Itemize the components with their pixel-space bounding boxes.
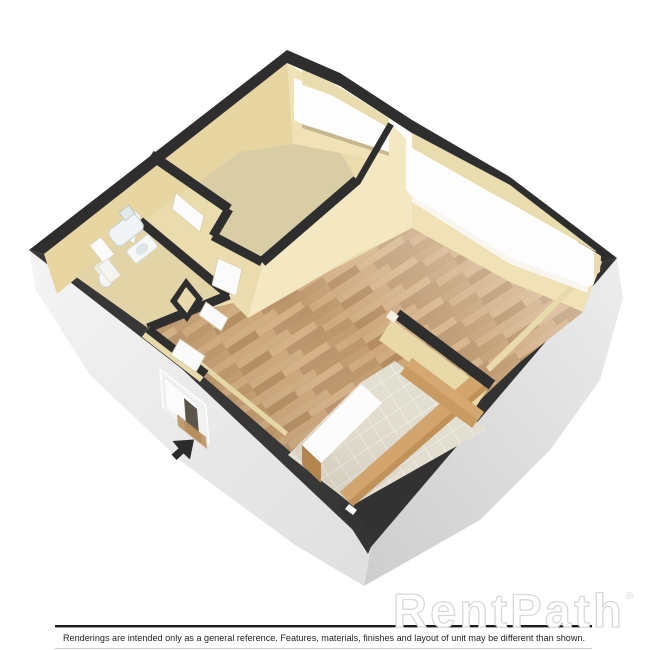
svg-text:RentPath: RentPath (393, 584, 625, 637)
svg-text:®: ® (626, 591, 634, 602)
